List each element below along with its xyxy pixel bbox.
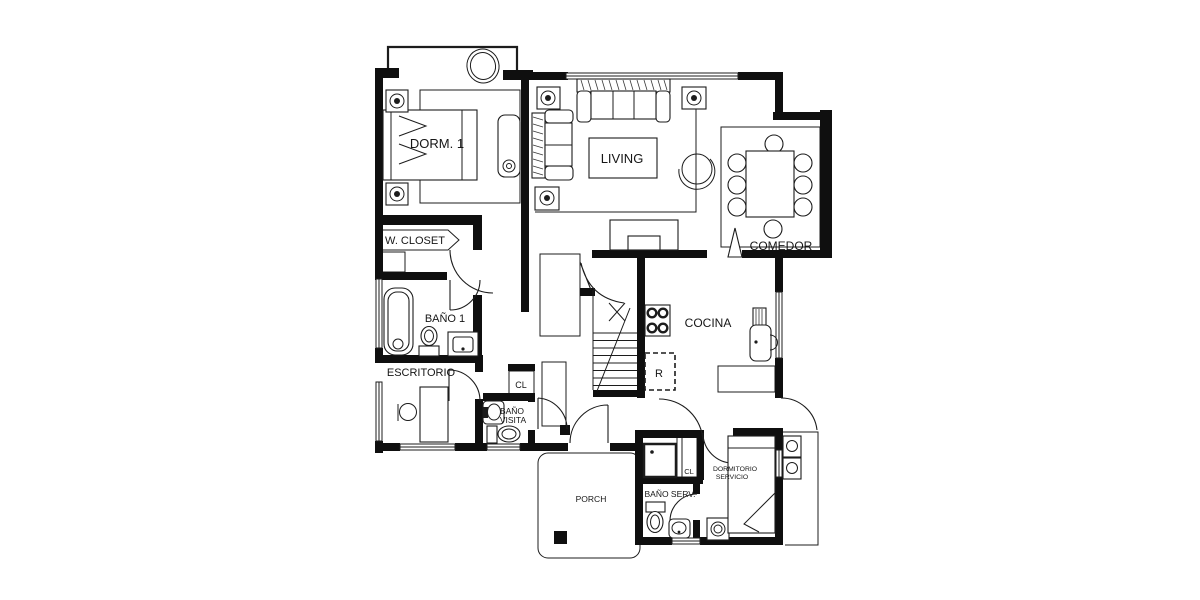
room-label-dorm1: DORM. 1 xyxy=(410,136,464,151)
kitchen-sink xyxy=(750,308,778,361)
side-table-lamp xyxy=(537,87,560,109)
washing-machine xyxy=(707,518,729,540)
loveseat xyxy=(532,110,573,180)
room-label-porch: PORCH xyxy=(576,494,607,504)
single-bed xyxy=(728,436,775,533)
dining-table xyxy=(746,151,794,217)
room-label-dorm-servicio-2: SERVICIO xyxy=(716,474,748,481)
bathtub xyxy=(384,288,413,355)
swivel-chair xyxy=(679,154,715,189)
porch-step xyxy=(554,531,567,544)
room-label-bano-visita-2: VISITA xyxy=(500,415,527,425)
room-label-comedor: COMEDOR xyxy=(750,239,813,253)
sink xyxy=(448,332,478,356)
corridor-door-arc xyxy=(450,250,493,293)
escritorio-furniture xyxy=(398,387,448,442)
laundry-tub xyxy=(783,436,801,457)
toilet xyxy=(419,327,439,357)
column-symbol xyxy=(386,183,408,205)
planter-basin xyxy=(463,46,502,87)
room-label-bano1: BAÑO 1 xyxy=(425,312,465,325)
sofa-three-seat xyxy=(577,79,670,122)
hall-cabinet-lower xyxy=(542,362,566,426)
room-label-dorm-servicio-1: DORMITORIO xyxy=(713,466,757,473)
comedor-furniture xyxy=(728,135,812,238)
room-label-walk-in-closet: W. CLOSET xyxy=(385,235,445,247)
floor-plan-page: DORM. 1 LIVING COMEDOR W. CLOSET BAÑO 1 … xyxy=(0,0,1200,600)
shower-base xyxy=(644,444,676,477)
porch-outline xyxy=(538,453,640,558)
toilet xyxy=(487,426,520,443)
room-label-closet-servicio: CL xyxy=(684,467,694,476)
side-table-lamp xyxy=(535,187,559,210)
room-label-closet-hall: CL xyxy=(515,380,527,390)
dresser xyxy=(498,115,520,177)
room-label-cocina: COCINA xyxy=(685,316,732,330)
sink xyxy=(669,519,690,538)
staircase xyxy=(593,290,637,391)
hall-cabinet-upper xyxy=(540,254,580,336)
closet-shelf xyxy=(381,252,405,272)
front-door-arc xyxy=(570,405,608,443)
room-label-bano-servicio: BAÑO SERV. xyxy=(644,489,695,499)
room-label-living: LIVING xyxy=(601,151,644,166)
tv-cabinet xyxy=(610,220,678,250)
floor-plan-canvas: DORM. 1 LIVING COMEDOR W. CLOSET BAÑO 1 … xyxy=(0,0,1200,600)
desk-chair xyxy=(398,404,417,422)
column-symbol xyxy=(386,90,408,112)
toilet xyxy=(646,502,665,533)
stair-start-cross xyxy=(609,303,625,321)
desk xyxy=(420,387,448,442)
side-table-lamp xyxy=(682,87,706,109)
label-refrigerator: R xyxy=(655,368,663,380)
rear-exterior-door-arc xyxy=(781,398,817,430)
room-label-escritorio: ESCRITORIO xyxy=(387,367,456,379)
stove xyxy=(645,305,670,336)
comedor-door-leaf xyxy=(728,228,742,257)
laundry-tub xyxy=(783,458,801,479)
kitchen-counter xyxy=(718,366,775,392)
stair-door-arc xyxy=(580,262,624,303)
